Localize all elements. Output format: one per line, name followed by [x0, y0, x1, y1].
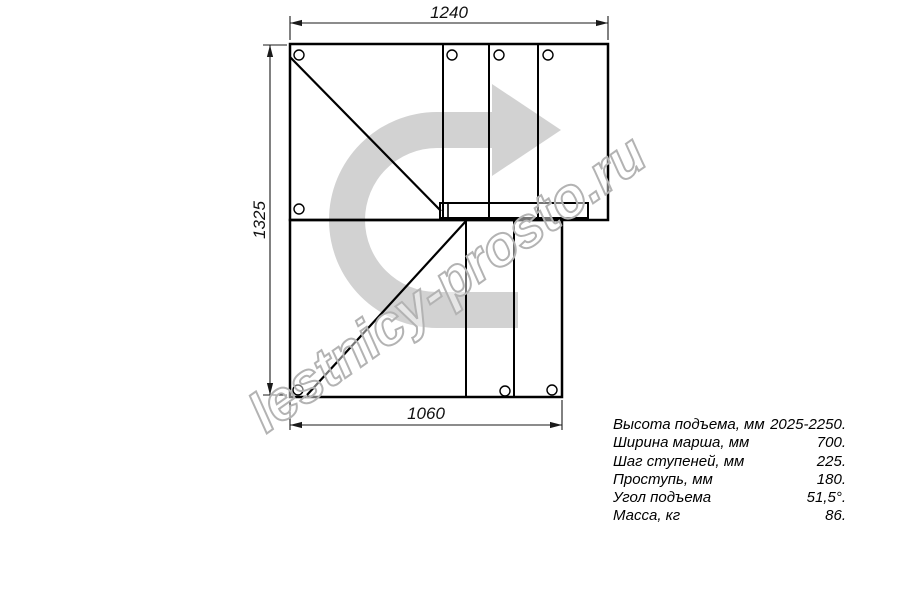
dimension-top-label: 1240 [430, 3, 468, 22]
spec-row-step-pitch: Шаг ступеней, мм 225. [613, 453, 846, 471]
hole-icon [543, 50, 553, 60]
spec-row-height: Высота подъема, мм 2025-2250. [613, 416, 846, 434]
stair-plan-page: 1240 1325 1060 lestnicy-prosto.ru Высота… [0, 0, 900, 600]
hole-icon [447, 50, 457, 60]
spec-value: 86. [825, 507, 846, 525]
spec-label: Шаг ступеней, мм [613, 453, 744, 471]
spec-value: 51,5°. [807, 489, 846, 507]
spec-label: Проступь, мм [613, 471, 713, 489]
hole-icon [494, 50, 504, 60]
hole-icon [294, 50, 304, 60]
spec-label: Угол подъема [613, 489, 711, 507]
spec-value: 700. [817, 434, 846, 452]
spec-row-march-width: Ширина марша, мм 700. [613, 434, 846, 452]
dimension-left-label: 1325 [250, 201, 269, 239]
spec-row-mass: Масса, кг 86. [613, 507, 846, 525]
spec-label: Масса, кг [613, 507, 680, 525]
watermark-text: lestnicy-prosto.ru [237, 121, 657, 443]
hole-icon [294, 204, 304, 214]
specs-table: Высота подъема, мм 2025-2250. Ширина мар… [613, 416, 846, 526]
spec-label: Высота подъема, мм [613, 416, 765, 434]
spec-row-tread: Проступь, мм 180. [613, 471, 846, 489]
spec-label: Ширина марша, мм [613, 434, 749, 452]
spec-value: 225. [817, 453, 846, 471]
spec-value: 180. [817, 471, 846, 489]
spec-row-angle: Угол подъема 51,5°. [613, 489, 846, 507]
hole-icon [500, 386, 510, 396]
hole-icon [547, 385, 557, 395]
dimension-bottom-label: 1060 [407, 404, 445, 423]
spec-value: 2025-2250. [770, 416, 846, 434]
